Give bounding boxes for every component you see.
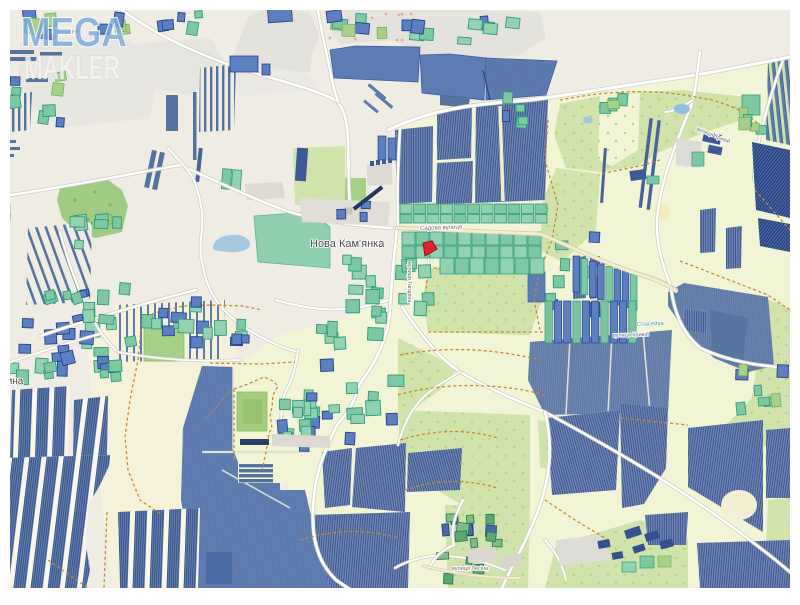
svg-text:вулиця Лесіна: вулиця Лесіна [452,566,489,572]
svg-text:Спасейка: Спасейка [637,320,665,328]
svg-text:Нова Кам'янка: Нова Кам'янка [310,238,385,250]
svg-text:MAKLER: MAKLER [24,49,120,86]
svg-text:вулиця Гагаріна: вулиця Гагаріна [406,262,412,303]
svg-text:вулиця Кривій: вулиця Кривій [613,331,649,339]
